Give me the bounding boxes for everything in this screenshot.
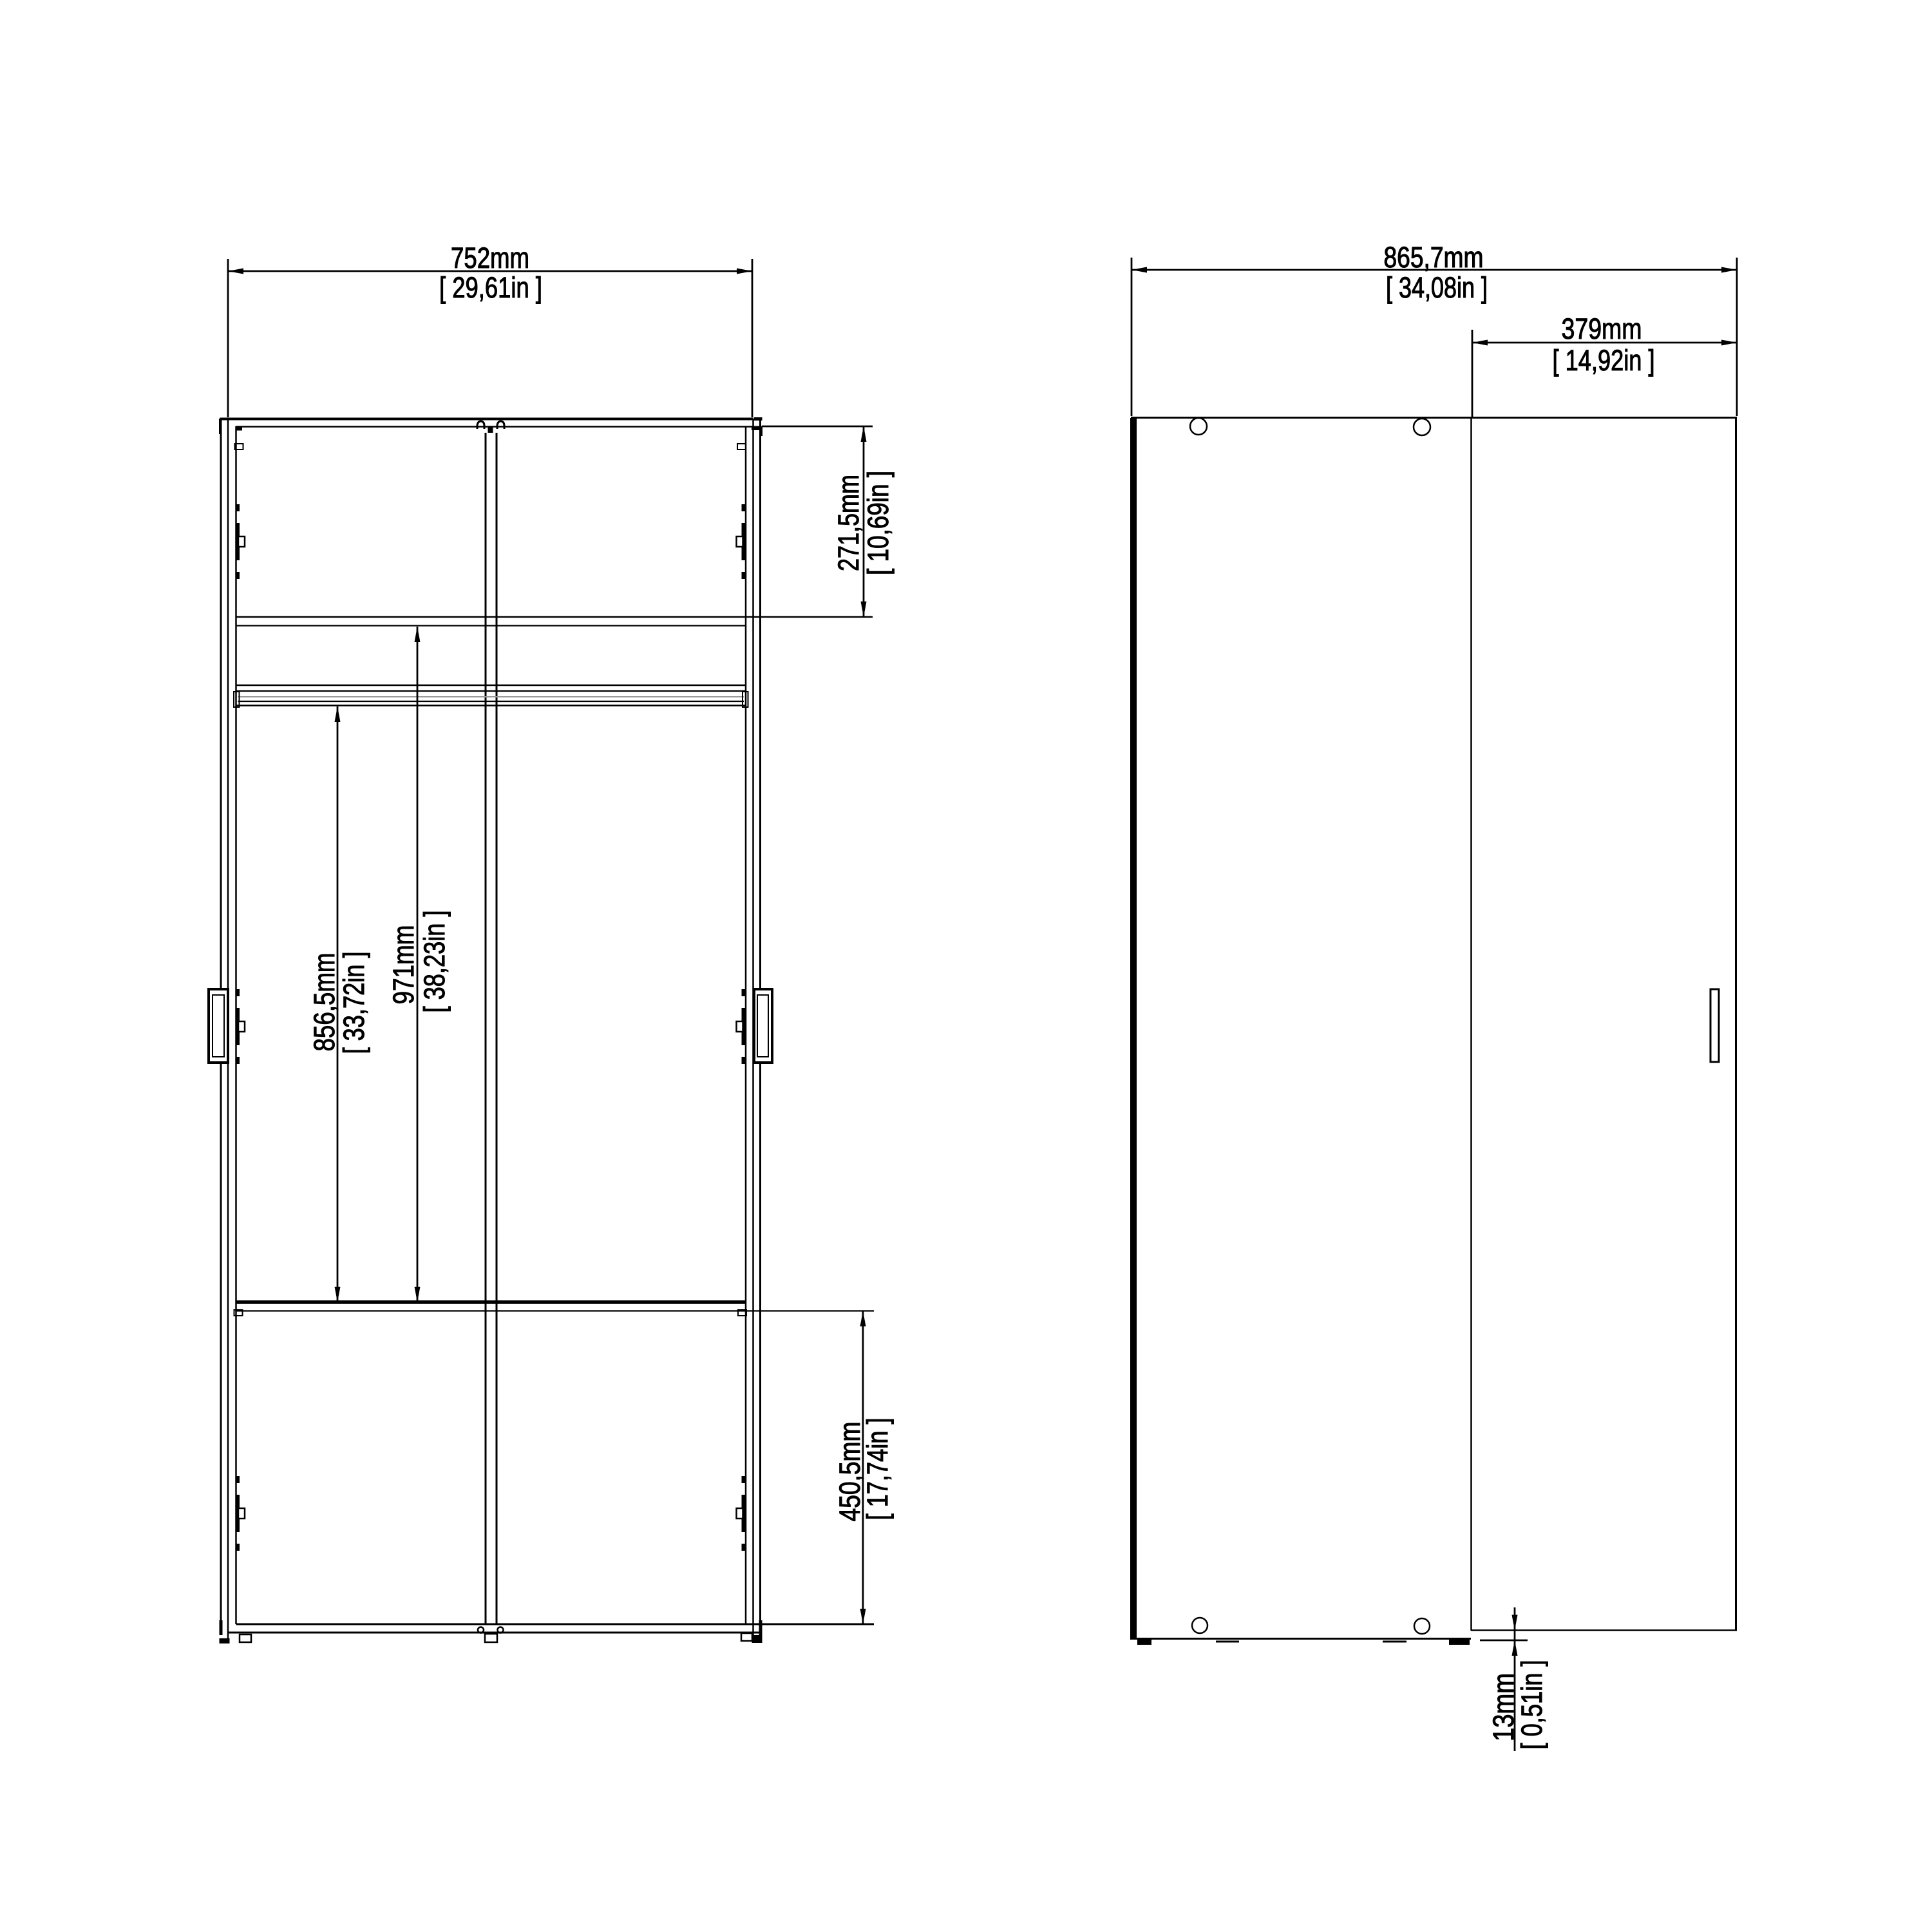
svg-text:[ 29,61in ]: [ 29,61in ] [439, 271, 542, 304]
svg-text:[ 38,23in ]: [ 38,23in ] [418, 911, 451, 1013]
svg-text:[ 14,92in ]: [ 14,92in ] [1553, 344, 1655, 377]
svg-text:379mm: 379mm [1562, 312, 1642, 345]
svg-text:[ 33,72in ]: [ 33,72in ] [337, 952, 370, 1054]
svg-text:865,7mm: 865,7mm [1384, 241, 1484, 274]
svg-text:971mm: 971mm [387, 925, 420, 1005]
svg-text:[ 10,69in ]: [ 10,69in ] [862, 471, 895, 575]
svg-text:[ 17,74in ]: [ 17,74in ] [861, 1418, 894, 1520]
svg-text:[ 34,08in ]: [ 34,08in ] [1386, 271, 1488, 304]
svg-text:271,5mm: 271,5mm [832, 475, 865, 571]
svg-text:[ 0,51in ]: [ 0,51in ] [1515, 1660, 1548, 1750]
svg-text:752mm: 752mm [451, 241, 529, 274]
svg-text:856,5mm: 856,5mm [308, 953, 341, 1052]
